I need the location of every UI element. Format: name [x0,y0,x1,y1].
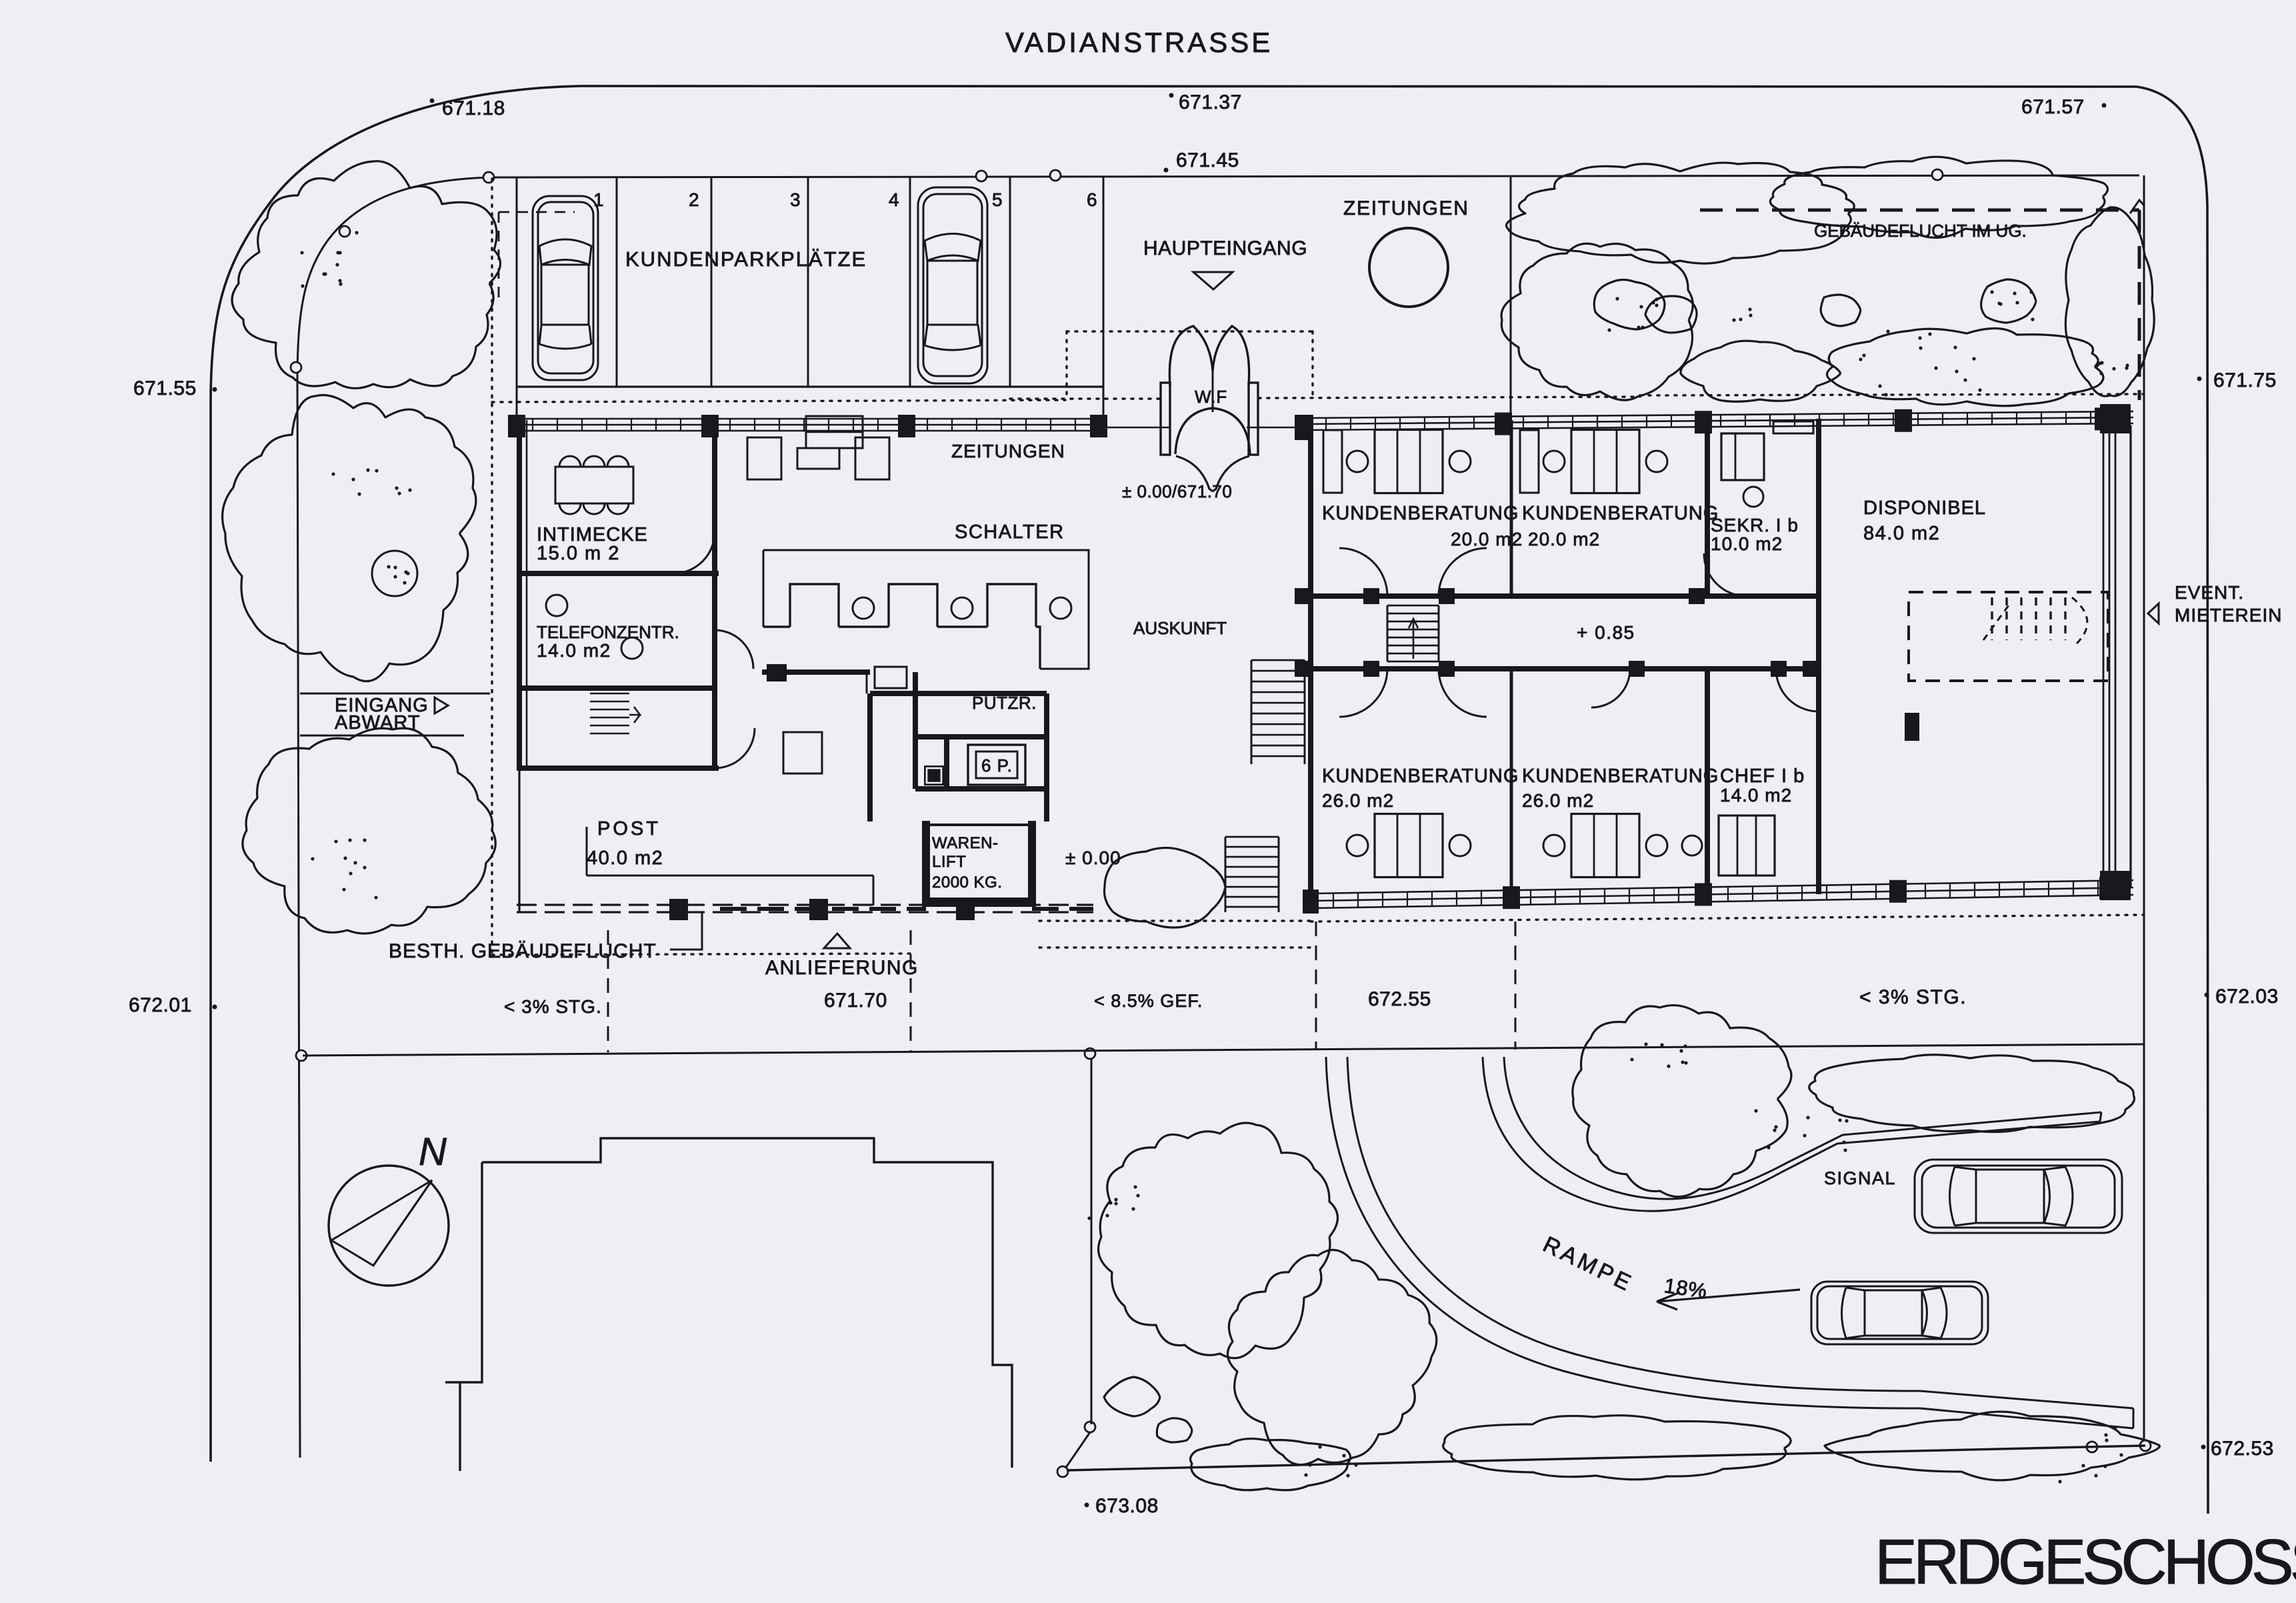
svg-text:4: 4 [889,189,899,210]
svg-text:LIFT: LIFT [932,853,966,871]
svg-text:SIGNAL: SIGNAL [1824,1168,1896,1188]
svg-text:KUNDENBERATUNG: KUNDENBERATUNG [1522,765,1719,787]
svg-text:< 3% STG.: < 3% STG. [504,996,602,1017]
svg-text:2000 KG.: 2000 KG. [932,874,1002,892]
svg-text:672.53: 672.53 [2211,1438,2274,1460]
svg-text:HAUPTEINGANG: HAUPTEINGANG [1143,237,1307,259]
svg-text:SCHALTER: SCHALTER [955,521,1065,543]
svg-text:KUNDENBERATUNG: KUNDENBERATUNG [1322,503,1519,524]
svg-text:KUNDENPARKPLÄTZE: KUNDENPARKPLÄTZE [625,247,867,271]
svg-text:ERDGESCHOSS: ERDGESCHOSS [1875,1526,2296,1598]
svg-text:+ 0.85: + 0.85 [1577,622,1635,643]
svg-text:ZEITUNGEN: ZEITUNGEN [1343,197,1469,219]
svg-text:1: 1 [593,189,604,210]
svg-text:671.70: 671.70 [824,990,887,1012]
svg-text:672.55: 672.55 [1368,988,1431,1010]
svg-text:< 8.5% GEF.: < 8.5% GEF. [1094,991,1203,1011]
svg-text:672.03: 672.03 [2215,986,2279,1008]
svg-text:671.57: 671.57 [2021,96,2085,118]
svg-text:40.0 m2: 40.0 m2 [587,848,663,869]
svg-text:KUNDENBERATUNG: KUNDENBERATUNG [1322,765,1519,787]
svg-text:ANLIEFERUNG: ANLIEFERUNG [765,957,919,979]
svg-text:20.0 m2: 20.0 m2 [1528,529,1600,549]
svg-text:672.01: 672.01 [129,994,192,1016]
svg-text:671.55: 671.55 [133,377,197,399]
svg-text:KUNDENBERATUNG: KUNDENBERATUNG [1522,503,1719,524]
svg-text:14.0 m2: 14.0 m2 [1720,785,1792,806]
svg-text:MIETEREIN: MIETEREIN [2175,605,2282,625]
svg-text:26.0 m2: 26.0 m2 [1322,790,1394,811]
svg-text:EVENT.: EVENT. [2175,582,2244,603]
svg-text:6 P.: 6 P. [981,755,1013,775]
svg-text:5: 5 [992,189,1003,210]
svg-text:671.75: 671.75 [2213,369,2277,391]
svg-text:14.0 m2: 14.0 m2 [537,640,611,661]
svg-text:ZEITUNGEN: ZEITUNGEN [951,441,1065,461]
svg-text:10.0 m2: 10.0 m2 [1711,533,1783,554]
svg-text:< 3% STG.: < 3% STG. [1859,986,1967,1008]
svg-text:TELEFONZENTR.: TELEFONZENTR. [537,622,679,642]
svg-text:BESTH. GEBÄUDEFLUCHT: BESTH. GEBÄUDEFLUCHT [389,940,657,962]
svg-text:CHEF I b: CHEF I b [1720,765,1805,787]
svg-text:W.F: W.F [1195,387,1227,407]
svg-text:671.18: 671.18 [442,97,505,119]
svg-text:PUTZR.: PUTZR. [972,693,1037,713]
svg-text:DISPONIBEL: DISPONIBEL [1863,497,1986,519]
svg-text:ABWART: ABWART [335,712,420,733]
svg-text:20.0 m2: 20.0 m2 [1451,529,1523,549]
svg-text:± 0.00/671.70: ± 0.00/671.70 [1122,481,1232,501]
svg-text:3: 3 [790,189,801,210]
svg-text:26.0 m2: 26.0 m2 [1522,790,1594,811]
svg-text:VADIANSTRASSE: VADIANSTRASSE [1005,27,1273,58]
svg-text:84.0 m2: 84.0 m2 [1863,523,1940,544]
svg-text:671.37: 671.37 [1179,91,1242,113]
svg-text:671.45: 671.45 [1176,149,1239,171]
svg-text:WAREN-: WAREN- [932,834,998,852]
svg-text:AUSKUNFT: AUSKUNFT [1133,618,1227,638]
svg-text:15.0 m 2: 15.0 m 2 [537,543,620,564]
svg-text:N: N [419,1130,447,1174]
svg-text:673.08: 673.08 [1095,1495,1159,1517]
svg-text:SEKR. I b: SEKR. I b [1711,515,1799,535]
svg-text:POST: POST [597,818,661,840]
svg-text:2: 2 [689,189,699,210]
svg-text:6: 6 [1087,189,1097,210]
